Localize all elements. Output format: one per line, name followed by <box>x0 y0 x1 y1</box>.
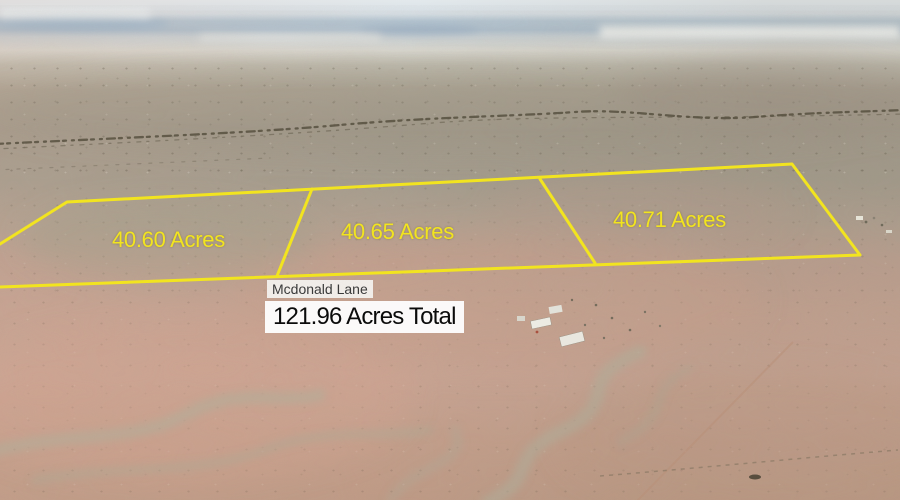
parcel-label-40-60: 40.60 Acres <box>112 227 225 253</box>
parcel-label-40-71: 40.71 Acres <box>613 207 726 233</box>
total-acreage-label: 121.96 Acres Total <box>265 301 464 333</box>
road-name-label: Mcdonald Lane <box>267 280 373 298</box>
horizon-features <box>0 8 900 42</box>
photo-grain-texture <box>0 50 900 500</box>
aerial-photo: 40.60 Acres 40.65 Acres 40.71 Acres Mcdo… <box>0 0 900 500</box>
parcel-label-40-65: 40.65 Acres <box>341 219 454 245</box>
